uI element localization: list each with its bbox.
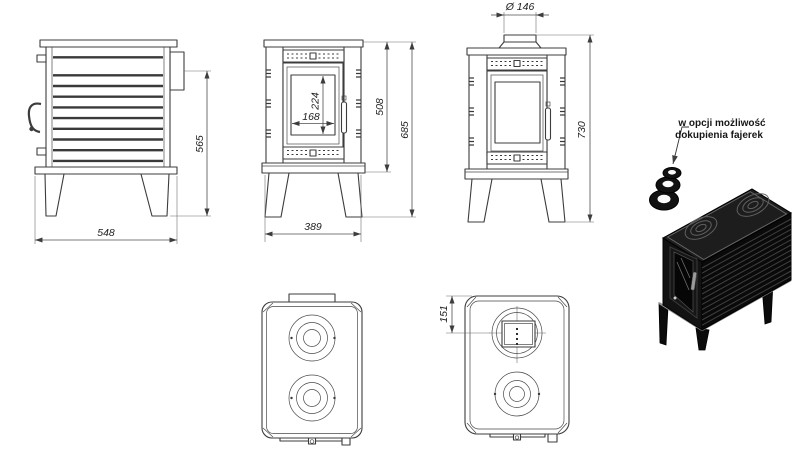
door-handle-front [342, 102, 347, 133]
dim-label-548: 548 [97, 227, 115, 239]
stove-rings-icon [650, 168, 682, 211]
dim-label-224: 224 [310, 92, 322, 111]
top-view [262, 294, 362, 445]
front-view-with-flue: Ø 146 730 [465, 1, 594, 222]
flue-front-leg-right [541, 179, 565, 222]
stove3d-leg-front [696, 328, 709, 350]
rear-flue-outlet [170, 52, 184, 90]
front-column-left [266, 47, 283, 163]
dim-label-730: 730 [576, 121, 588, 139]
dim-label-flue-diameter: Ø 146 [505, 1, 535, 13]
dim-label-168: 168 [302, 111, 320, 123]
dim-label-389: 389 [304, 221, 322, 233]
side-leg-left [45, 174, 64, 216]
top-view-with-flue-opening: 151 [438, 296, 569, 442]
technical-drawing-sheet: 548 565 224 [0, 0, 800, 450]
stove3d-leg-left [659, 303, 668, 345]
drawing-svg: 548 565 224 [0, 0, 800, 450]
side-view: 548 565 [29, 40, 211, 244]
side-leg-right [141, 174, 169, 216]
flue-collar-base [499, 42, 541, 48]
flue-front-leg-left [468, 179, 492, 222]
front-view: 224 168 389 508 685 [262, 40, 416, 242]
dim-label-508: 508 [374, 98, 386, 116]
flue-grille-bottom-latch [514, 155, 520, 161]
side-top-plate [40, 40, 177, 47]
flue-collar [504, 35, 536, 42]
front-leg-right [338, 173, 362, 217]
dim-body-height: 508 [363, 42, 416, 172]
stove-3d-render [659, 189, 791, 350]
stove3d-hinge-dot [674, 297, 677, 300]
callout-text-line2: dokupienia fajerek [675, 130, 763, 141]
hinge-bottom [37, 148, 46, 155]
flue-front-base-plate [465, 169, 568, 179]
callout: w opcji możliwość dokupienia fajerek [673, 118, 766, 164]
front-leg-left [265, 173, 289, 217]
side-base-plate [35, 167, 177, 174]
grille-bottom-latch [310, 150, 316, 156]
front-base-plate [262, 163, 365, 173]
dim-flue-diameter: Ø 146 [491, 1, 549, 33]
door-handle-knob [29, 127, 33, 131]
dim-label-151: 151 [438, 305, 450, 323]
grille-top-latch [310, 53, 316, 59]
dim-label-685: 685 [399, 121, 411, 139]
flue-grille-top-latch [514, 61, 520, 67]
flue-door-glass [495, 82, 540, 143]
flue-door-handle [546, 108, 551, 140]
flue-front-top-plate [467, 48, 566, 55]
dim-label-565: 565 [194, 135, 206, 153]
dim-total-height: 685 [362, 42, 416, 217]
hinge-top [37, 55, 46, 62]
callout-text-line1: w opcji możliwość [677, 118, 766, 129]
front-top-plate [264, 40, 363, 47]
dim-side-height: 565 [170, 71, 211, 216]
